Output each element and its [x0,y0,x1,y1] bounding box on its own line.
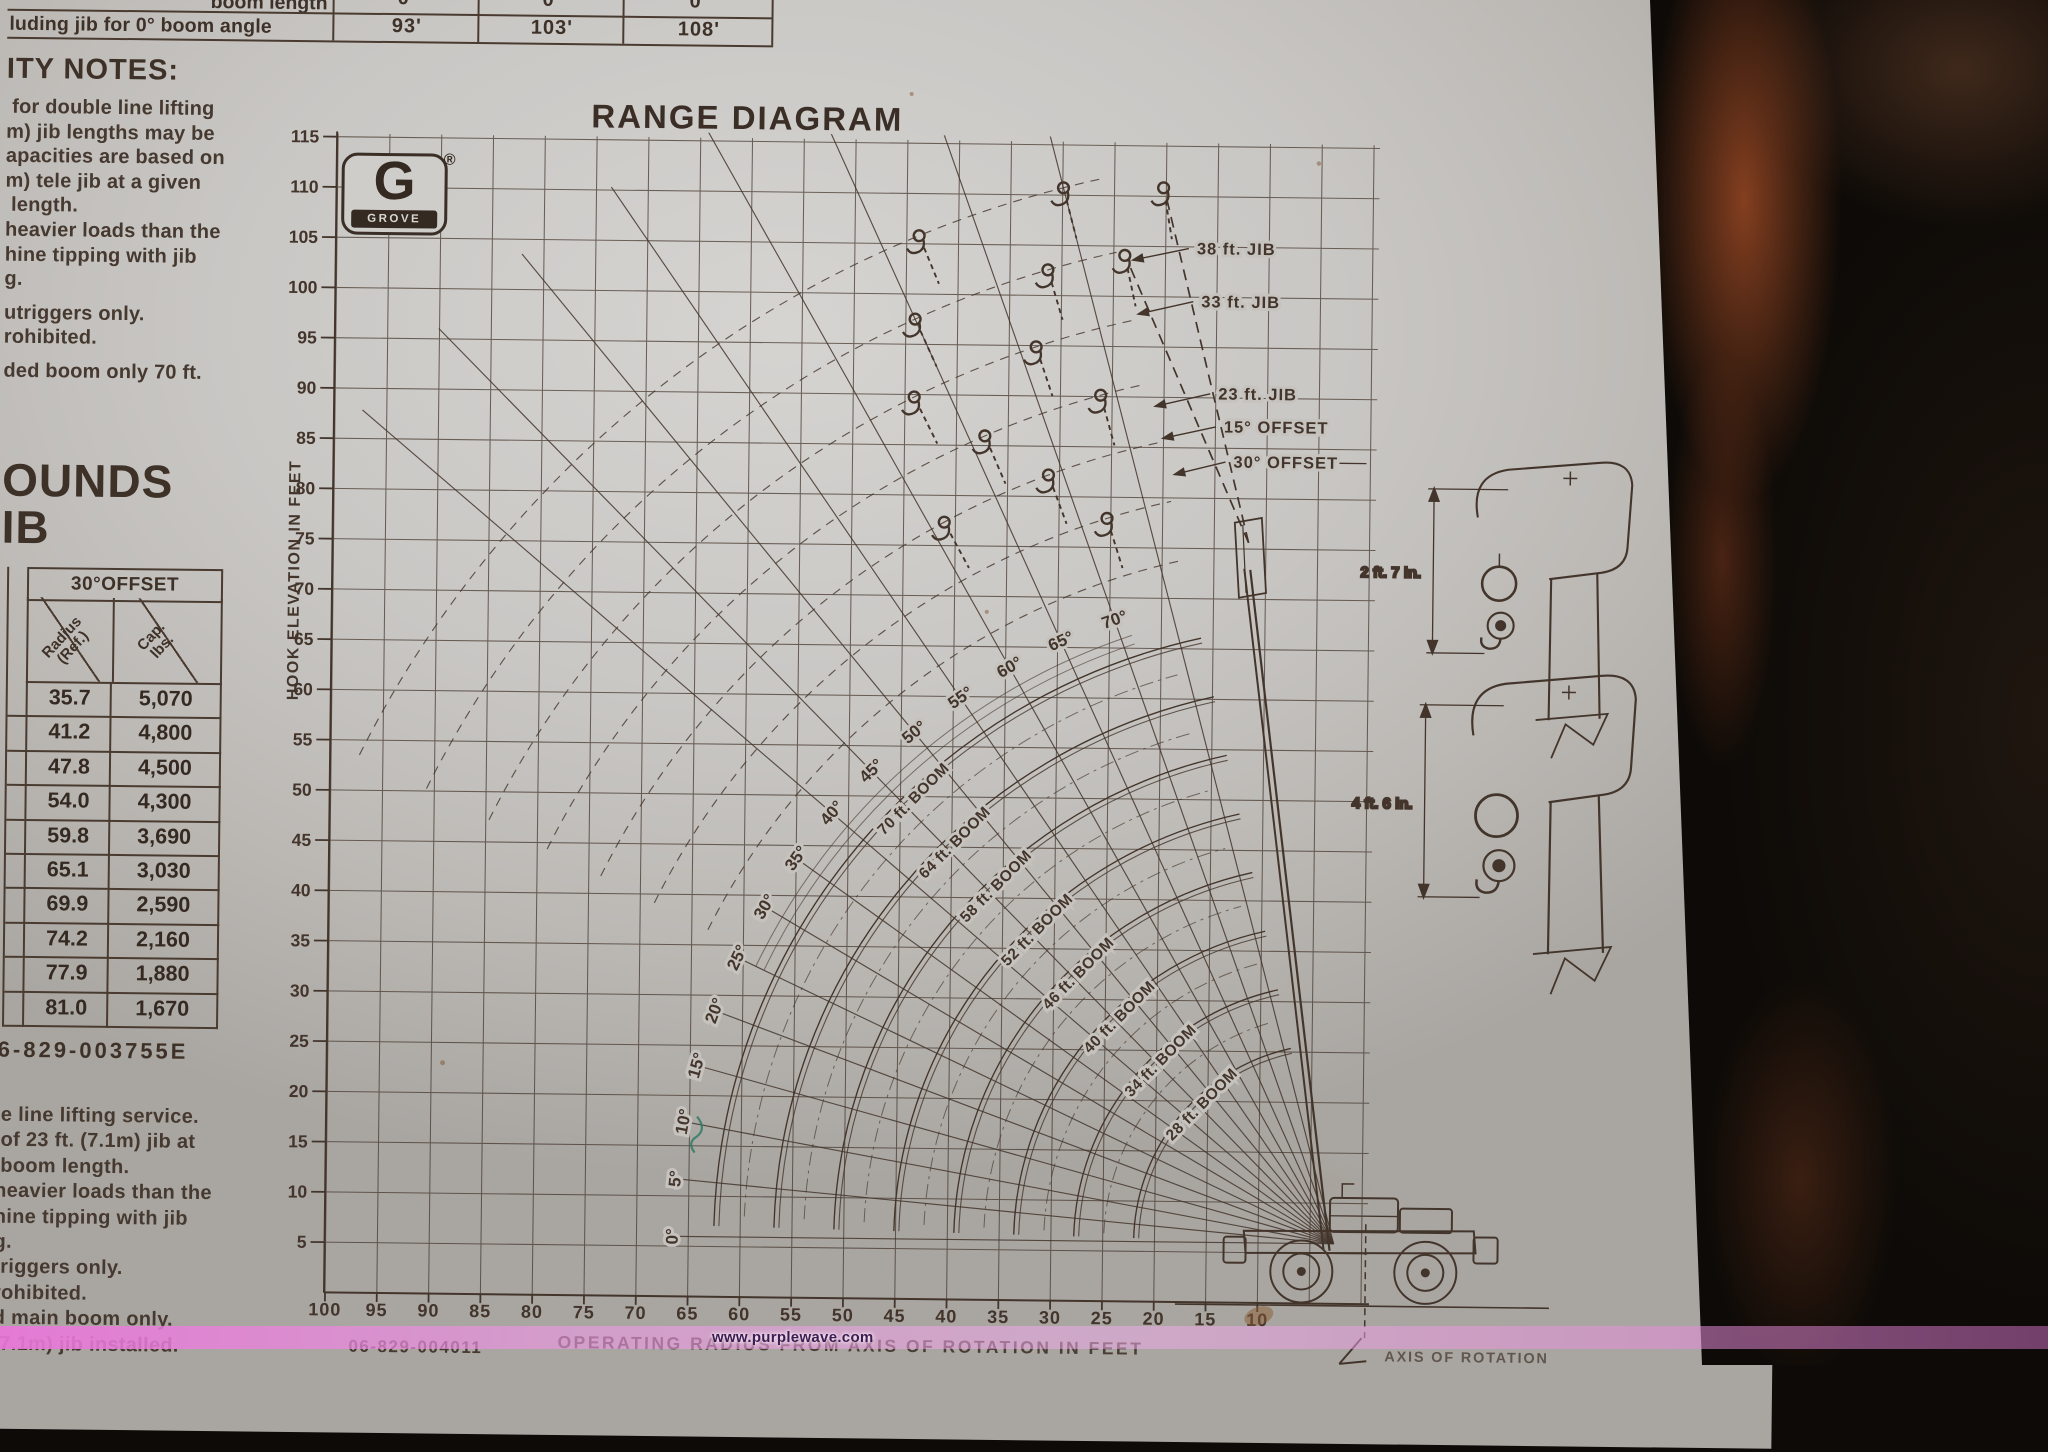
boom-length-value: 103' [479,16,624,41]
jib-label: 15° OFFSET [1224,419,1329,438]
speck [1317,161,1321,165]
capacity-value: 5,070 [110,682,222,720]
capacity-value: 1,880 [106,957,218,995]
radius-value: 59.8 [24,819,110,856]
boom-angle-line [676,1120,1335,1243]
note-line: for double line lifting [6,95,306,123]
watermark-text: www.purplewave.com [712,1329,874,1346]
callout-arrowhead-icon [1153,399,1167,408]
note-line: heavier loads than the [5,218,305,246]
radius-value: 77.9 [22,956,108,993]
callout-line [1164,393,1210,404]
table-row: 41.24,800 [7,715,217,752]
pounds-heading-line2: IB [1,504,173,553]
hook-icon [932,517,970,568]
boom-angle-label: 55° [944,682,976,712]
table-row: 65.13,030 [6,853,216,890]
table-row: 59.83,690 [6,818,216,855]
offset-table-header: Radius (Ref.) Cap. lbs. [26,597,223,685]
table-row: 35.75,070 [8,681,218,718]
capacity-value: 4,300 [108,785,220,823]
note-line: length. [5,193,305,221]
grove-logo: G GROVE [341,153,448,236]
y-tick-label: 85 [296,428,316,448]
jib-notes: le line lifting service. of 23 ft. (7.1m… [0,1103,295,1360]
note-line: ded boom only 70 ft. [3,359,303,387]
cut-cell [5,922,23,959]
note-line: hine tipping with jib [5,242,305,270]
cut-cell [7,750,25,787]
note-line: hine tipping with jib [0,1204,294,1233]
hook-icon [902,391,938,443]
callout-arrowhead-icon [1131,253,1145,263]
note-line: boom length. [0,1153,295,1182]
capacity-notes: ITY NOTES: for double line liftingm) jib… [3,53,307,396]
note-line: m) jib lengths may be [6,119,306,147]
cut-cell [6,818,24,855]
x-tick-label: 40 [935,1306,957,1326]
boom-length-cell: 0°108' [622,0,774,45]
boom-angle-label: 35° [781,842,812,874]
jib-angle-row-label: luding jib for 0° boom angle [9,13,329,40]
capacity-value: 2,590 [107,888,219,926]
boom-head-detail-1: 2 ft. 7 in. [1358,460,1632,759]
note-line: of 23 ft. (7.1m) jib at [0,1128,295,1157]
boom-angle-value: 0° [625,0,774,14]
jib-label: 30° OFFSET [1233,454,1338,473]
radius-value: 65.1 [24,853,110,890]
x-tick-label: 75 [573,1302,595,1322]
boom-angle-label: 10° [672,1107,695,1136]
boom-angle-label: 70° [1099,606,1130,633]
watermark-band: www.purplewave.com [0,1326,2048,1349]
cut-cell [6,784,24,821]
cut-cell [4,956,22,993]
boom-angle-value: 0° [480,0,625,13]
x-tick-label: 100 [308,1299,341,1319]
speck [985,610,989,614]
callout-line [1147,301,1193,312]
note-line: triggers only. [0,1255,293,1284]
radius-header-cell: Radius (Ref.) [28,597,113,682]
y-tick-label: 45 [292,830,312,850]
radius-value: 54.0 [24,784,110,821]
jib-label: 38 ft. JIB [1197,240,1276,259]
hook-icon [1475,794,1517,836]
speck [910,92,914,96]
capacity-value: 2,160 [107,923,219,961]
boom-length-value: 108' [624,18,773,43]
boom-angle-label: 25° [723,942,751,974]
cut-cell [8,681,26,718]
hook-icon [903,314,938,367]
boom-head [1234,518,1267,598]
capacity-value: 4,500 [109,751,221,789]
pounds-jib-heading: OUNDS IB [1,457,173,553]
note-line: le line lifting service. [0,1103,295,1132]
radius-value: 74.2 [23,922,109,959]
x-tick-label: 50 [832,1305,854,1325]
capacity-value: 1,670 [106,991,218,1029]
boom-angle-value: 0° [335,0,480,11]
x-tick-label: 55 [780,1305,802,1325]
callout-line [1171,426,1215,437]
callout-arrowhead-icon [1161,431,1175,441]
note-line: m) tele jib at a given [5,168,305,196]
capacity-notes-heading: ITY NOTES: [7,53,307,89]
boom-angle-line [896,36,1347,1244]
table-row: 47.84,500 [7,750,217,787]
x-tick-label: 35 [987,1307,1009,1327]
hook-icon [1112,250,1136,306]
table-row: 54.04,300 [6,784,216,821]
boom-angle-label: 5° [665,1169,686,1187]
speck [440,1060,445,1065]
boom-angle-label: 15° [684,1050,709,1080]
note-line: apacities are based on [6,144,306,172]
grove-logo-name: GROVE [351,210,437,229]
y-tick-label: 40 [291,880,311,900]
chart-title: RANGE DIAGRAM [591,97,903,139]
capacity-header-cell: Cap. lbs. [112,598,223,683]
y-tick-label: 20 [289,1081,309,1101]
table-row: 81.01,670 [4,990,214,1027]
capacity-value: 3,030 [108,854,220,892]
y-tick-label: 50 [292,779,312,799]
boom-length-value: 93' [334,14,479,39]
hook-icon [1151,182,1172,239]
offset-path-arc [756,631,1132,970]
dimension-label: 4 ft. 6 in. [1352,795,1413,813]
boom-length-label: 40 ft. BOOM [1080,978,1158,1057]
x-tick-label: 85 [469,1301,491,1321]
table-row: 77.91,880 [4,956,214,993]
note-line: utriggers only. [4,300,304,328]
x-tick-label: 30 [1039,1307,1061,1327]
cut-cell [7,715,25,752]
boom-angle-label: 0° [663,1228,682,1245]
dimension-label: 2 ft. 7 in. [1360,564,1421,582]
hook-icon [1094,513,1123,568]
note-line: heavier loads than the [0,1179,294,1208]
radius-value: 47.8 [25,750,111,787]
hook-icon [1482,566,1516,600]
y-tick-label: 35 [290,930,310,950]
boom-angle-label: 60° [994,653,1026,682]
radius-value: 41.2 [25,715,111,752]
cut-cell [5,887,23,924]
table-row: 74.22,160 [5,922,215,959]
jib-reach-arc [359,171,1100,764]
x-tick-label: 70 [624,1303,646,1323]
y-tick-label: 30 [290,980,310,1000]
x-tick-label: 80 [521,1302,543,1322]
y-tick-label: 25 [289,1031,309,1051]
x-tick-label: 65 [676,1303,698,1323]
y-axis-title: HOOK ELEVATION IN FEET [285,460,305,701]
cut-cell [4,990,22,1027]
y-tick-label: 5 [297,1232,307,1252]
boom-length-cell: 0°93' [332,0,480,42]
jib-label: 33 ft. JIB [1201,293,1280,312]
boom-side-view [1117,197,1342,1250]
radius-value: 35.7 [26,681,112,718]
boom-angle-line [599,187,1345,1244]
boom-head-detail-2: 4 ft. 6 in. [1350,673,1636,995]
grove-logo-letter: G [344,150,445,213]
capacity-value: 3,690 [108,819,220,857]
note-line: g. [4,267,304,295]
boom-angle-line [668,1178,1334,1244]
callout-line [1183,462,1225,473]
capacity-value: 4,800 [109,716,221,754]
boom-angle-label: 65° [1045,627,1076,655]
axis-line [1365,1224,1366,1338]
x-tick-label: 60 [728,1304,750,1324]
boom-angle-line [755,903,1337,1244]
note-line: rohibited. [4,325,304,353]
radius-value: 69.9 [23,887,109,924]
radius-value: 81.0 [22,991,108,1028]
table-row: 69.92,590 [5,887,215,924]
boom-angle-label: 50° [898,717,930,748]
callout-arrowhead-icon [1172,467,1186,476]
note-line: g. [0,1230,294,1259]
jib-tip-hooks [900,179,1172,570]
y-tick-label: 55 [293,729,313,749]
cut-cell [6,853,24,890]
registered-mark: ® [444,152,456,170]
boom-angle-label: 40° [816,797,847,829]
note-line: rohibited. [0,1280,293,1309]
pounds-heading-line1: OUNDS [2,457,174,506]
boom-length-cell: 0°103' [477,0,625,44]
part-number-left: 6-829-003755E [0,1037,189,1065]
x-tick-label: 90 [417,1300,439,1320]
jib-label: 23 ft. JIB [1218,385,1297,404]
boom-length-arc [719,638,1202,1232]
boom-angle-label: 20° [701,995,728,1026]
offset-capacity-table: 30°OFFSET Radius (Ref.) Cap. lbs. 35.75,… [2,567,223,1029]
hook-icon [1024,341,1054,396]
x-tick-label: 95 [365,1300,387,1320]
x-tick-label: 45 [883,1306,905,1326]
